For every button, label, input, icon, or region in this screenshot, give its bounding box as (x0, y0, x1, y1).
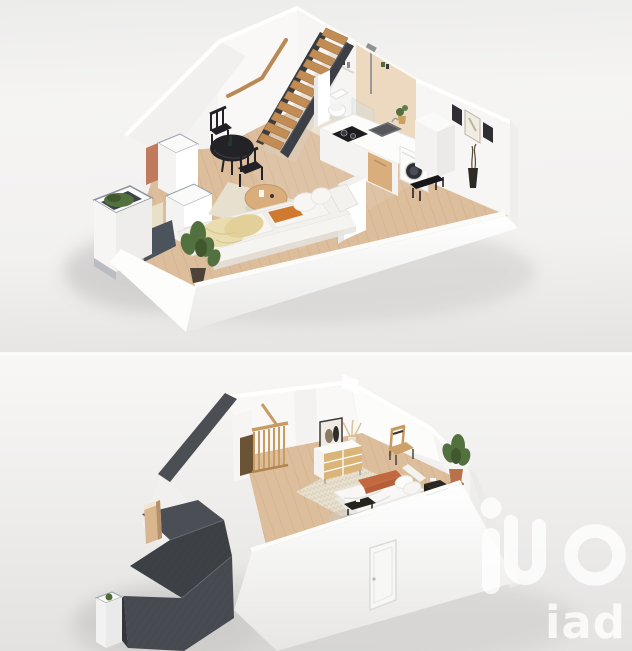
terracotta-panel (146, 143, 158, 185)
chimney (144, 500, 162, 544)
front-door (370, 540, 396, 610)
bath-partition (318, 70, 330, 126)
ground-floor-scene (0, 0, 632, 352)
stair-enclosure-wall (294, 386, 318, 446)
panel-separator (0, 352, 632, 355)
lower-planter-box (96, 592, 122, 648)
ground-floor-view (0, 0, 632, 352)
roof-dormers-charcoal (118, 393, 237, 651)
upper-floor-scene (0, 352, 632, 651)
upper-floor-view: iad (0, 352, 632, 651)
roof-edge-strip (158, 393, 237, 482)
door-handle (372, 577, 375, 580)
kitchen-partition (415, 112, 455, 178)
stairwell-opening (240, 434, 254, 476)
terracotta-pot (449, 469, 463, 483)
floor-plan-composite: iad (0, 0, 632, 651)
